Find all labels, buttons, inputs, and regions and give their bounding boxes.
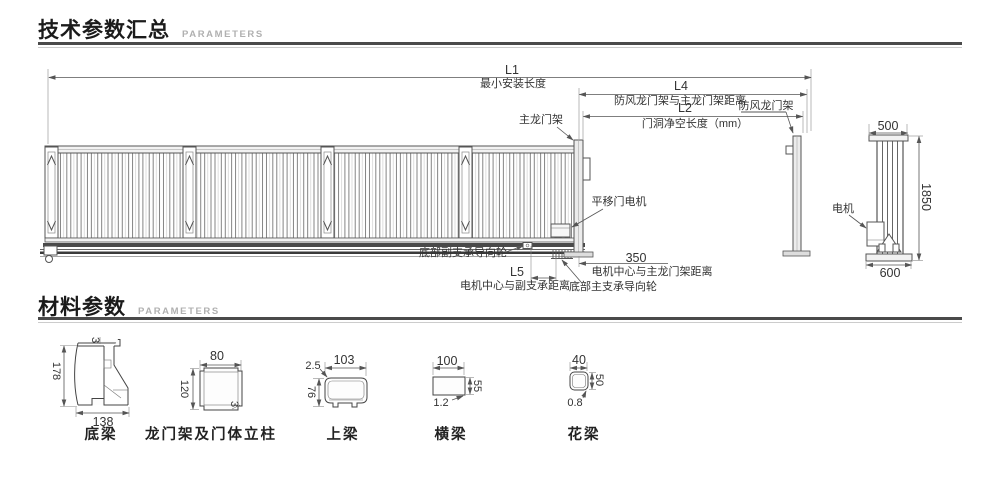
wind-gantry-post — [783, 136, 810, 256]
dim-350-value: 350 — [626, 252, 647, 266]
label-main-wheel: 底部主支承导向轮 — [569, 281, 657, 293]
material-name-column: 龙门架及门体立柱 — [145, 428, 277, 444]
profile-top-beam — [313, 362, 367, 407]
tech-title: 技术参数汇总 — [38, 19, 170, 42]
dim-l1-code: L1 — [505, 64, 519, 78]
motor-box — [551, 224, 570, 237]
dim-flowerbeam-thickness: 0.8 — [567, 397, 582, 409]
dim-topbeam-height: 76 — [305, 386, 317, 398]
dim-topbeam-thickness: 2.5 — [305, 360, 320, 372]
tech-subtitle: PARAMETERS — [182, 29, 264, 40]
dim-crossbeam-width: 100 — [437, 355, 458, 369]
dim-flowerbeam-height: 50 — [593, 374, 605, 386]
dim-350-label: 电机中心与主龙门架距离 — [592, 266, 713, 278]
label-main-gantry: 主龙门架 — [519, 114, 563, 126]
aux-guide-wheel — [523, 243, 532, 249]
dim-l5-code: L5 — [510, 266, 524, 280]
label-wind-gantry: 防风龙门架 — [739, 100, 794, 112]
material-title: 材料参数 — [38, 296, 126, 319]
technical-drawing — [0, 0, 1000, 480]
label-motor: 平移门电机 — [592, 196, 647, 208]
material-name-bottom-beam: 底梁 — [85, 428, 118, 444]
section-header-tech: 技术参数汇总PARAMETERS — [38, 14, 264, 44]
profile-bottom-beam — [60, 337, 129, 417]
dim-column-thickness: 3 — [228, 401, 240, 407]
dim-l2-label: 门洞净空长度（mm） — [642, 118, 748, 130]
dim-crossbeam-height: 55 — [471, 380, 483, 392]
label-aux-wheel: 底部副支承导向轮 — [419, 247, 507, 259]
label-side-motor: 电机 — [832, 203, 854, 215]
left-guide-wheel — [44, 246, 57, 263]
dim-side-base: 600 — [880, 267, 901, 281]
material-name-flower-beam: 花梁 — [568, 428, 601, 444]
material-name-cross-beam: 横梁 — [435, 428, 468, 444]
material-name-top-beam: 上梁 — [327, 428, 360, 444]
material-subtitle: PARAMETERS — [138, 306, 220, 317]
dim-bottombeam-thickness: 3 — [89, 337, 101, 343]
gate-post — [45, 147, 58, 238]
material-profiles — [60, 337, 596, 417]
dim-side-height: 1850 — [918, 183, 932, 211]
dim-flowerbeam-width: 40 — [572, 354, 586, 368]
section-rule — [38, 42, 962, 48]
gate-side-view — [866, 135, 912, 261]
dim-topbeam-width: 103 — [334, 354, 355, 368]
gate-post — [321, 147, 334, 238]
dim-crossbeam-thickness: 1.2 — [433, 397, 448, 409]
gate-post — [183, 147, 196, 238]
dim-column-width: 80 — [210, 350, 224, 364]
dim-l4-code: L4 — [674, 80, 688, 94]
gate-front-view — [40, 146, 585, 263]
dim-column-height: 120 — [178, 380, 190, 398]
section-rule — [38, 317, 962, 323]
dim-bottombeam-height: 178 — [50, 362, 62, 380]
dim-side-width: 500 — [878, 120, 899, 134]
gate-post — [459, 147, 472, 238]
side-motor-box — [867, 222, 884, 246]
dim-l5-label: 电机中心与副支承距离 — [460, 280, 570, 292]
dim-l1-label: 最小安装长度 — [480, 78, 546, 90]
dim-l2-code: L2 — [678, 102, 692, 116]
